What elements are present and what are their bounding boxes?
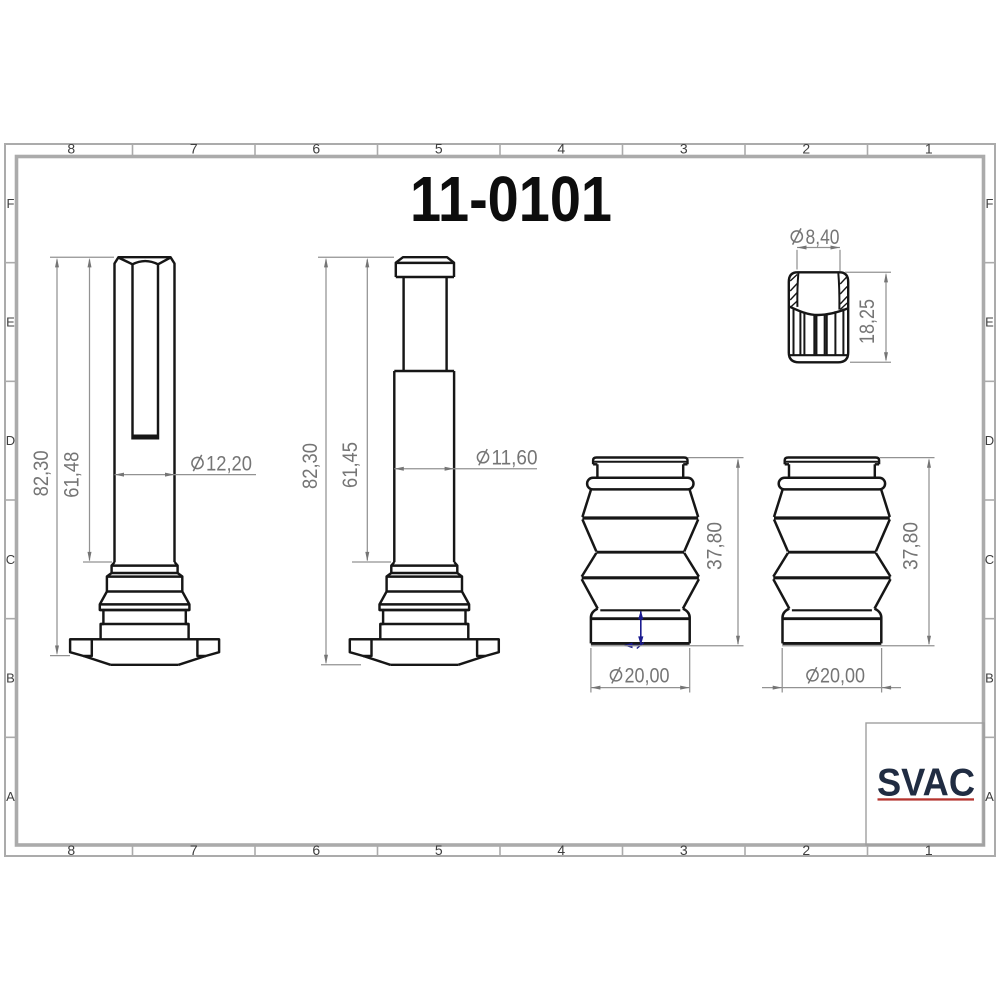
svg-text:18,25: 18,25	[856, 299, 879, 344]
svg-text:A: A	[985, 789, 994, 804]
svg-text:2: 2	[802, 141, 810, 157]
svg-text:37,80: 37,80	[704, 522, 727, 570]
svg-text:F: F	[7, 196, 15, 211]
svg-text:61,48: 61,48	[61, 452, 84, 498]
svg-text:B: B	[985, 671, 994, 686]
svg-text:61,45: 61,45	[339, 442, 362, 488]
svg-text:82,30: 82,30	[299, 443, 322, 489]
svg-text:37,80: 37,80	[900, 522, 923, 570]
svg-text:5: 5	[435, 842, 443, 858]
svg-text:6: 6	[312, 141, 320, 157]
svg-text:B: B	[6, 671, 15, 686]
svg-text:1: 1	[925, 141, 933, 157]
svg-text:11-0101: 11-0101	[410, 163, 612, 235]
svg-text:20,00: 20,00	[820, 665, 865, 688]
svg-text:8: 8	[67, 842, 75, 858]
svg-text:4: 4	[557, 842, 565, 858]
svg-text:D: D	[985, 433, 994, 448]
svg-text:5: 5	[435, 141, 443, 157]
svg-text:SVAC: SVAC	[877, 762, 975, 805]
svg-text:F: F	[986, 196, 994, 211]
svg-text:20,00: 20,00	[625, 665, 670, 688]
svg-text:D: D	[6, 433, 15, 448]
svg-text:C: C	[985, 552, 994, 567]
svg-text:A: A	[6, 789, 15, 804]
svg-text:E: E	[985, 315, 994, 330]
svg-text:4: 4	[557, 141, 565, 157]
svg-text:7: 7	[190, 842, 198, 858]
svg-text:82,30: 82,30	[30, 450, 53, 496]
svg-text:7: 7	[190, 141, 198, 157]
svg-text:3: 3	[680, 141, 688, 157]
svg-text:6: 6	[312, 842, 320, 858]
svg-text:11,60: 11,60	[492, 447, 538, 470]
svg-text:8,40: 8,40	[806, 226, 840, 249]
svg-text:3: 3	[680, 842, 688, 858]
svg-text:12,20: 12,20	[206, 452, 252, 475]
svg-text:E: E	[6, 315, 15, 330]
svg-text:8: 8	[67, 141, 75, 157]
svg-text:C: C	[6, 552, 15, 567]
svg-text:2: 2	[802, 842, 810, 858]
